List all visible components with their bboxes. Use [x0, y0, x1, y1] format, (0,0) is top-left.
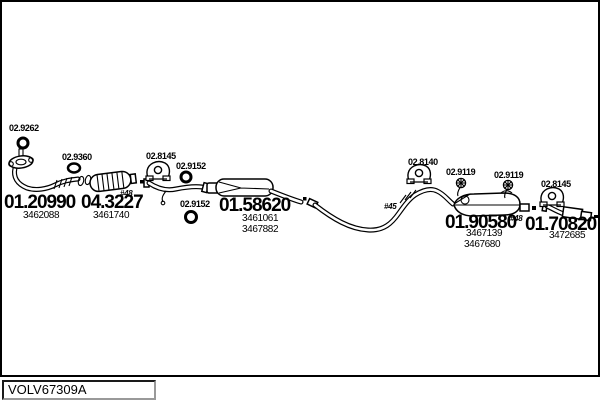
note-ref: #45	[384, 203, 396, 211]
sheet-code: VOLV67309A	[8, 382, 87, 397]
fitting-number: 02.8145	[541, 180, 571, 189]
oe-number: 3461740	[93, 211, 129, 221]
oe-number: 3461061	[242, 214, 278, 224]
oe-number: 3472685	[549, 231, 585, 241]
fitting-number: 02.8140	[408, 158, 438, 167]
gasket-ring-icon	[18, 138, 28, 148]
oval-gasket-icon	[68, 164, 80, 173]
fitting-number: 02.9119	[446, 168, 475, 177]
fitting-number: 02.8145	[146, 152, 176, 161]
fitting-number: 02.9152	[176, 162, 206, 171]
fitting-number: 02.9360	[62, 153, 92, 162]
ring-icon	[186, 212, 197, 223]
connector-dot	[140, 180, 144, 184]
hanger-icon	[407, 165, 431, 184]
exhaust-diagram	[2, 2, 598, 375]
hanger-icon	[540, 188, 564, 207]
diagram-frame: 02.9262 02.9360 02.8145 02.9152 02.9152 …	[0, 0, 600, 377]
bolt-icon	[456, 178, 465, 196]
note-ref: #48	[510, 215, 522, 223]
fitting-number: 02.9119	[494, 171, 523, 180]
oe-number: 3467882	[242, 225, 278, 235]
sheet-code-box: VOLV67309A	[2, 380, 156, 400]
connector-dot	[303, 197, 307, 201]
fitting-number: 02.9262	[9, 124, 39, 133]
oe-number: 3467680	[464, 240, 500, 250]
note-ref: #48	[120, 190, 132, 198]
connector-dot	[532, 206, 536, 210]
fitting-number: 02.9152	[180, 200, 210, 209]
catalog-page: 02.9262 02.9360 02.8145 02.9152 02.9152 …	[0, 0, 600, 400]
oe-number: 3462088	[23, 211, 59, 221]
front-flange-icon	[8, 149, 33, 170]
oe-number: 3467139	[466, 229, 502, 239]
hanger-icon	[146, 162, 170, 181]
ring-icon	[181, 172, 191, 182]
